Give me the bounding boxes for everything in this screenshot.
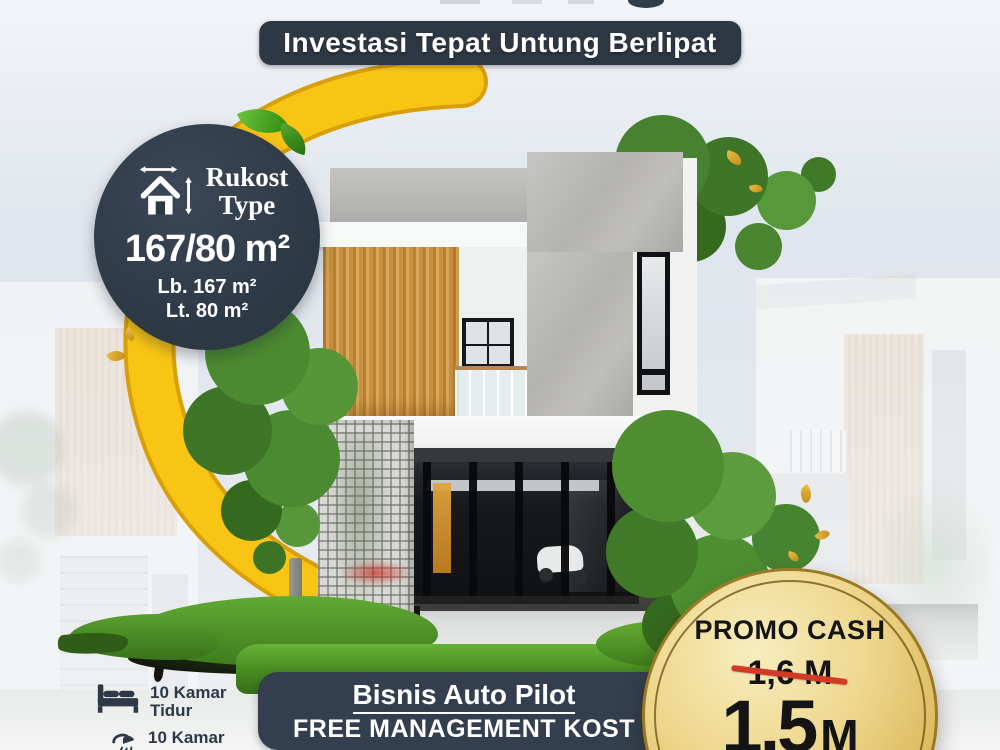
- promo-poster: Rukost Type 167/80 m² Lb. 167 m² Lt. 80 …: [0, 0, 1000, 750]
- tall-window-divider: [642, 369, 665, 375]
- footer-panel: Bisnis Auto Pilot FREE MANAGEMENT KOST: [258, 672, 670, 750]
- remnant-glyph: [512, 0, 542, 4]
- balcony-glass-railing: [455, 366, 529, 418]
- concrete-tower-column: [527, 252, 633, 423]
- glass-storefront: [377, 462, 639, 608]
- amenity-text: 10 Kamar: [148, 729, 225, 747]
- bed-icon: [96, 684, 140, 714]
- spec-land-area: Lt. 80 m²: [94, 300, 320, 323]
- tree-right: [612, 410, 724, 522]
- red-flower-accent: [340, 560, 412, 586]
- old-price: 1,6 M: [747, 654, 832, 693]
- new-price: 1,5M: [645, 693, 935, 750]
- promo-label: PROMO CASH: [645, 615, 935, 646]
- header-tagline: Investasi Tepat Untung Berlipat: [283, 27, 717, 58]
- remnant-glyph: [440, 0, 480, 4]
- footer-line1: Bisnis Auto Pilot: [353, 679, 576, 711]
- wood-slat-facade: [323, 247, 459, 418]
- spec-circle-badge: Rukost Type 167/80 m² Lb. 167 m² Lt. 80 …: [94, 124, 320, 350]
- amenity-bedrooms: 10 Kamar Tidur: [96, 684, 266, 720]
- concrete-tower-top: [527, 152, 683, 252]
- island-root: [153, 665, 164, 682]
- spec-size: 167/80 m²: [94, 228, 320, 271]
- coin-content: PROMO CASH 1,6 M 1,5M: [645, 615, 935, 750]
- tall-window: [637, 252, 670, 395]
- house-fascia: [318, 222, 532, 247]
- house-dimensions-icon: [134, 162, 198, 222]
- spec-building-area: Lb. 167 m²: [94, 276, 320, 299]
- header-tagline-badge: Investasi Tepat Untung Berlipat: [259, 21, 741, 65]
- house-roof-band: [330, 168, 532, 224]
- spec-type-label: Rukost Type: [206, 164, 289, 219]
- upper-window: [462, 318, 514, 368]
- storefront-mullions: [377, 462, 639, 602]
- remnant-glyph: [568, 0, 594, 4]
- amenity-text: 10 Kamar Tidur: [150, 684, 227, 720]
- amenities-list: 10 Kamar Tidur 10 Kamar: [96, 684, 266, 750]
- amenity-bathrooms: 10 Kamar: [96, 729, 266, 750]
- spec-header-row: Rukost Type: [120, 162, 302, 222]
- footer-line2: FREE MANAGEMENT KOST: [293, 715, 635, 744]
- shower-icon: [108, 729, 138, 750]
